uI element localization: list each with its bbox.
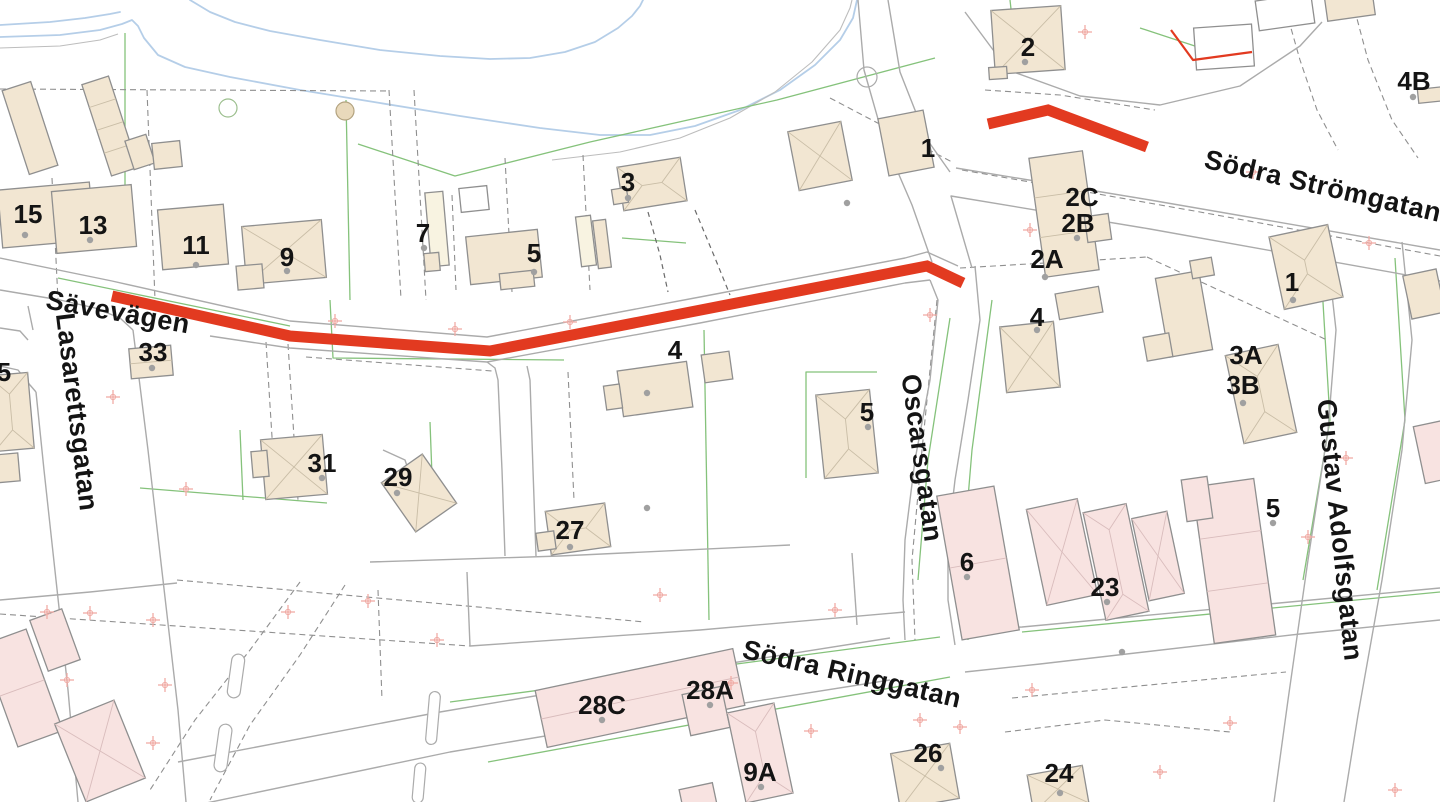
route-highlight-short — [988, 110, 1147, 147]
building-ne-1 — [1325, 0, 1376, 21]
building-4-right — [1000, 321, 1061, 392]
yard-square — [459, 186, 489, 213]
building-mid-right-a-footprint — [1143, 333, 1173, 361]
parcel-dashed-line — [452, 195, 456, 290]
survey-cross-icon — [1388, 783, 1402, 797]
building-4-mid-a-footprint — [603, 384, 622, 410]
building-mid-right-a — [1143, 333, 1173, 361]
stream-line — [0, 0, 857, 135]
parking-island — [213, 723, 233, 772]
city-map[interactable]: 1513119753124B2C2B2A413A3B33531292745623… — [0, 0, 1440, 802]
street-name-label: Oscarsgatan — [895, 372, 948, 544]
strip-a-footprint — [2, 82, 58, 175]
building-5-br-wing — [1181, 476, 1213, 521]
address-dot — [22, 232, 28, 238]
building-mid-right-b-footprint — [1190, 257, 1215, 279]
building-number-label: 5 — [0, 357, 11, 387]
survey-cross-icon — [563, 315, 577, 329]
address-dot — [1290, 297, 1296, 303]
road-edge — [467, 572, 905, 646]
parcel-dashed-line — [568, 372, 574, 500]
building-31-annex-footprint — [251, 450, 269, 477]
building-27-annex — [536, 531, 556, 551]
survey-cross-icon — [653, 588, 667, 602]
building-bottom-pink-footprint — [679, 783, 717, 802]
survey-cross-icon — [953, 720, 967, 734]
building-number-label: 13 — [79, 210, 108, 240]
building-27-annex-footprint — [536, 531, 556, 551]
parcel-dashed-line — [1005, 720, 1230, 732]
building-number-label: 2A — [1030, 244, 1063, 274]
building-31-annex — [251, 450, 269, 477]
survey-cross-icon — [106, 390, 120, 404]
building-number-label: 28C — [578, 690, 626, 720]
building-number-label: 9 — [280, 242, 294, 272]
building-1-top-west — [788, 121, 852, 190]
building-number-label: 24 — [1045, 758, 1074, 788]
building-number-label: 1 — [921, 133, 935, 163]
vegetation-line — [1377, 258, 1405, 590]
address-dot — [644, 505, 650, 511]
parcel-dashed-line — [414, 90, 426, 300]
building-5-top-annex-footprint — [499, 270, 534, 289]
street-name-label: Lasarettsgatan — [50, 311, 104, 512]
building-9-annex — [236, 264, 264, 290]
strip-a — [2, 82, 58, 175]
survey-cross-icon — [1078, 25, 1092, 39]
road-edge — [28, 306, 33, 330]
survey-cross-icon — [828, 603, 842, 617]
building-7-annex — [424, 252, 441, 271]
tree-icon — [857, 67, 877, 87]
building-5-top-annex — [499, 270, 534, 289]
building-number-label: 5 — [1266, 493, 1280, 523]
road-edge — [965, 620, 1440, 672]
parcel-dashed-line — [1012, 672, 1286, 698]
road-edge — [852, 553, 857, 625]
building-2-annex — [989, 66, 1008, 79]
road-edge — [0, 328, 28, 340]
parking-island — [412, 763, 426, 802]
building-9-annex-footprint — [236, 264, 264, 290]
street-name-label: Gustav Adolfsgatan — [1311, 398, 1368, 663]
building-number-label: 5 — [860, 397, 874, 427]
vegetation-line — [622, 238, 686, 243]
building-5-left-annex-footprint — [0, 453, 20, 483]
parcel-dashed-line — [389, 90, 401, 299]
building-number-label: 23 — [1091, 572, 1120, 602]
road-edge — [487, 362, 505, 556]
address-dot — [1119, 649, 1125, 655]
building-4-right-annex-footprint — [1055, 286, 1103, 319]
map-canvas: 1513119753124B2C2B2A413A3B33531292745623… — [0, 0, 1440, 802]
survey-cross-icon — [913, 713, 927, 727]
building-number-label: 1 — [1285, 267, 1299, 297]
building-1-right — [1269, 225, 1343, 310]
survey-cross-icon — [146, 613, 160, 627]
survey-cross-icon — [361, 594, 375, 608]
survey-cross-icon — [281, 605, 295, 619]
building-number-label: 4 — [1030, 302, 1045, 332]
address-dot — [1042, 274, 1048, 280]
building-mid-right-b — [1190, 257, 1215, 279]
building-number-label: 31 — [308, 448, 337, 478]
building-number-label: 29 — [384, 462, 413, 492]
road-edge — [527, 366, 536, 556]
survey-cross-icon — [146, 736, 160, 750]
building-number-label: 4 — [668, 335, 683, 365]
building-east-pink-footprint — [1413, 421, 1440, 484]
building-number-label: 4B — [1397, 66, 1430, 96]
survey-cross-icon — [158, 678, 172, 692]
building-5-left-annex — [0, 453, 20, 483]
building-number-label: 5 — [527, 238, 541, 268]
parcel-dashed-line — [0, 89, 389, 91]
survey-cross-icon — [1153, 765, 1167, 779]
building-sw-2 — [55, 700, 146, 802]
parking-island — [425, 691, 441, 745]
building-4-mid — [617, 361, 693, 416]
building-number-label: 26 — [914, 738, 943, 768]
parking-island — [227, 653, 246, 698]
street-name-label: Södra Ringgatan — [740, 634, 965, 714]
building-4-mid-b — [701, 351, 733, 383]
building-ne-1-footprint — [1325, 0, 1376, 21]
address-dot — [1240, 400, 1246, 406]
building-number-label: 6 — [960, 547, 974, 577]
building-number-label: 2 — [1021, 32, 1035, 62]
survey-cross-icon — [1023, 223, 1037, 237]
building-number-label: 9A — [743, 757, 776, 787]
building-number-label: 15 — [14, 199, 43, 229]
parcel-dashed-line — [147, 90, 155, 300]
parcel-dark-dashed-line — [648, 212, 668, 292]
strip-b — [82, 76, 138, 176]
building-number-label: 27 — [556, 515, 585, 545]
parcel-dashed-line — [378, 590, 382, 700]
building-ne-2 — [1255, 0, 1315, 31]
address-dot — [531, 269, 537, 275]
building-number-label: 3B — [1226, 370, 1259, 400]
road-edge — [960, 588, 1440, 630]
label-layer: 1513119753124B2C2B2A413A3B33531292745623… — [0, 32, 1440, 788]
vegetation-line — [346, 100, 350, 300]
building-5-br-wing-footprint — [1181, 476, 1213, 521]
survey-cross-icon — [1223, 716, 1237, 730]
building-4-mid-b-footprint — [701, 351, 733, 383]
building-number-label: 7 — [416, 218, 430, 248]
building-6 — [937, 486, 1019, 640]
building-east-edge-footprint — [1403, 269, 1440, 319]
building-4-right-annex — [1055, 286, 1103, 319]
building-east-edge — [1403, 269, 1440, 319]
building-4-mid-a — [603, 384, 622, 410]
building-number-label: 2B — [1061, 208, 1094, 238]
outbuilding-footprint — [152, 141, 183, 170]
address-dot — [844, 200, 850, 206]
building-number-label: 33 — [139, 337, 168, 367]
parcel-dark-dashed-line — [695, 210, 730, 295]
address-dot — [1057, 790, 1063, 796]
outbuilding — [152, 141, 183, 170]
survey-cross-icon — [804, 724, 818, 738]
address-dot — [193, 262, 199, 268]
parcel-dashed-line — [177, 580, 645, 622]
road-edge — [0, 583, 177, 600]
building-number-label: 11 — [182, 230, 210, 260]
survey-cross-icon — [328, 314, 342, 328]
address-dot — [644, 390, 650, 396]
tree-icon — [219, 99, 237, 117]
survey-cross-icon — [1025, 683, 1039, 697]
building-2-annex-footprint — [989, 66, 1008, 79]
survey-cross-icon — [179, 482, 193, 496]
building-ne-2-footprint — [1255, 0, 1315, 31]
tree-icon — [336, 102, 354, 120]
survey-cross-icon — [430, 633, 444, 647]
building-east-pink — [1413, 421, 1440, 484]
building-number-label: 3 — [621, 167, 635, 197]
building-number-label: 3A — [1229, 340, 1262, 370]
building-7-annex-footprint — [424, 252, 441, 271]
building-bottom-pink — [679, 783, 717, 802]
survey-cross-icon — [83, 606, 97, 620]
building-4-mid-footprint — [617, 361, 693, 416]
building-number-label: 28A — [686, 675, 734, 705]
vegetation-line — [240, 430, 243, 500]
road-edge — [133, 330, 186, 802]
stream-line — [0, 12, 120, 25]
courtyard-building — [1194, 24, 1255, 70]
stream-line — [190, 0, 643, 59]
survey-cross-icon — [60, 673, 74, 687]
yard-square-footprint — [459, 186, 489, 213]
courtyard-building-footprint — [1194, 24, 1255, 70]
